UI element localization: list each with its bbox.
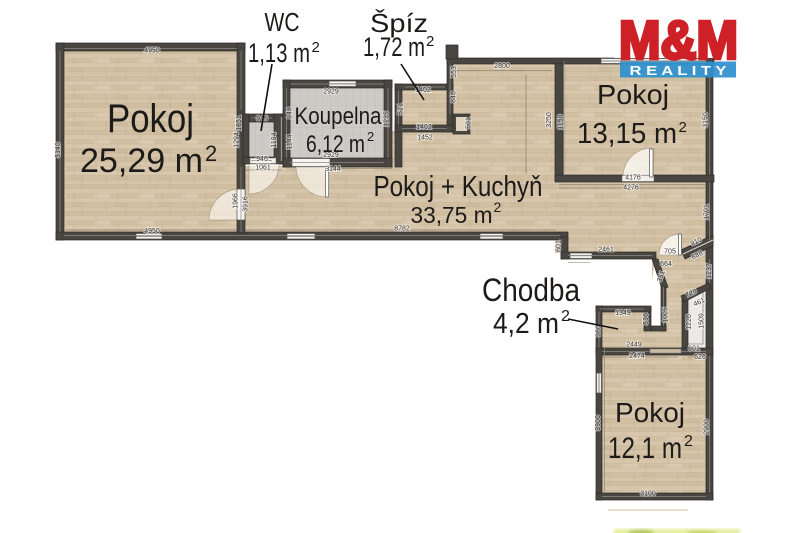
svg-text:3150: 3150 <box>703 112 710 128</box>
svg-text:601: 601 <box>556 240 563 252</box>
svg-text:4,2 m: 4,2 m <box>493 308 559 340</box>
svg-text:1294: 1294 <box>234 132 241 148</box>
svg-text:2: 2 <box>684 433 693 450</box>
svg-text:1235: 1235 <box>384 111 391 127</box>
svg-text:25,29 m: 25,29 m <box>80 142 203 180</box>
svg-text:1226: 1226 <box>686 314 693 330</box>
svg-text:946: 946 <box>256 156 268 163</box>
svg-text:3916: 3916 <box>243 196 250 212</box>
svg-text:521: 521 <box>398 103 405 115</box>
svg-text:4176: 4176 <box>625 175 641 182</box>
svg-text:2: 2 <box>367 129 374 144</box>
svg-text:1701: 1701 <box>704 204 711 220</box>
svg-text:2: 2 <box>679 119 687 136</box>
svg-text:2: 2 <box>205 141 217 166</box>
svg-text:Chodba: Chodba <box>482 272 580 308</box>
svg-text:1851: 1851 <box>236 115 243 131</box>
svg-text:848: 848 <box>451 91 458 103</box>
svg-text:2: 2 <box>494 199 502 215</box>
svg-text:3100: 3100 <box>640 491 656 498</box>
svg-text:2900: 2900 <box>704 419 711 435</box>
svg-text:6,12 m: 6,12 m <box>306 131 365 158</box>
svg-text:R E A L I T Y: R E A L I T Y <box>630 64 728 78</box>
svg-text:960: 960 <box>596 325 603 337</box>
svg-text:2474: 2474 <box>629 353 645 360</box>
svg-text:536: 536 <box>643 313 650 325</box>
svg-text:33,75 m: 33,75 m <box>411 202 493 228</box>
svg-text:Pokoj: Pokoj <box>597 79 669 110</box>
svg-text:2461: 2461 <box>598 247 614 254</box>
svg-text:Pokoj: Pokoj <box>615 397 685 428</box>
svg-text:WC: WC <box>265 7 300 37</box>
svg-text:1452: 1452 <box>417 135 433 142</box>
svg-text:Pokoj: Pokoj <box>107 97 194 141</box>
svg-text:Koupelna: Koupelna <box>295 103 382 130</box>
svg-text:1144: 1144 <box>287 134 294 149</box>
svg-text:1,13 m: 1,13 m <box>248 38 310 68</box>
svg-text:3900: 3900 <box>595 415 602 431</box>
svg-text:553: 553 <box>451 66 458 78</box>
svg-text:1402: 1402 <box>416 124 432 131</box>
svg-text:1349: 1349 <box>615 310 631 317</box>
svg-text:626: 626 <box>694 354 706 361</box>
svg-text:601: 601 <box>688 346 700 353</box>
svg-text:3144: 3144 <box>325 166 341 173</box>
svg-text:5140: 5140 <box>55 142 62 158</box>
svg-text:948: 948 <box>287 107 294 119</box>
svg-text:2: 2 <box>561 308 570 325</box>
svg-text:1061: 1061 <box>255 165 271 172</box>
svg-text:4950: 4950 <box>144 228 160 235</box>
svg-text:1150: 1150 <box>558 114 565 129</box>
svg-text:2449: 2449 <box>626 342 642 349</box>
svg-text:501: 501 <box>466 117 473 129</box>
svg-text:13,15 m: 13,15 m <box>577 118 677 150</box>
svg-text:12,1 m: 12,1 m <box>608 432 682 465</box>
svg-text:1966: 1966 <box>233 193 240 209</box>
svg-text:1,72 m: 1,72 m <box>363 32 425 62</box>
svg-text:2: 2 <box>312 39 320 56</box>
svg-text:Pokoj + Kuchyň: Pokoj + Kuchyň <box>374 171 543 203</box>
svg-text:2800: 2800 <box>494 63 510 70</box>
svg-text:8782: 8782 <box>394 226 410 233</box>
svg-text:3250: 3250 <box>546 112 553 128</box>
svg-text:664: 664 <box>660 261 672 268</box>
svg-text:1237: 1237 <box>706 263 713 279</box>
svg-text:4950: 4950 <box>144 48 160 55</box>
svg-text:1509: 1509 <box>699 313 706 329</box>
svg-text:4276: 4276 <box>623 185 639 192</box>
svg-text:705: 705 <box>664 249 676 256</box>
svg-text:1005: 1005 <box>663 307 670 323</box>
svg-text:2: 2 <box>426 33 434 50</box>
svg-text:2929: 2929 <box>323 89 339 96</box>
svg-text:1194: 1194 <box>271 132 278 147</box>
